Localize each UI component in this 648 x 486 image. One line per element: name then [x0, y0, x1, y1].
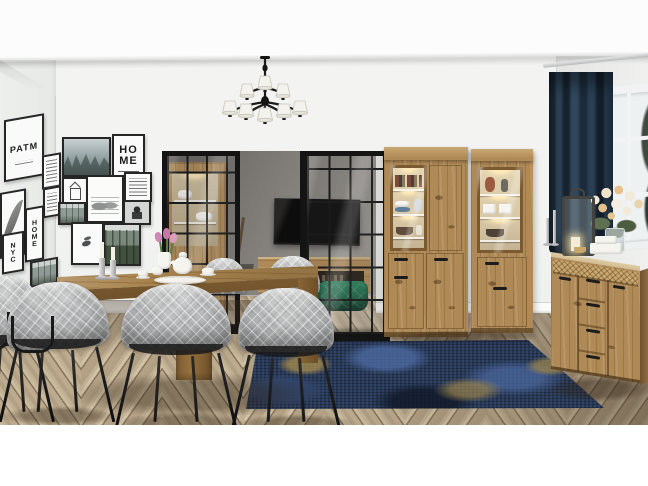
candlestick-silver — [553, 210, 556, 244]
chair-shell — [121, 284, 232, 350]
chair-leg — [266, 358, 273, 422]
lower-door-left — [388, 253, 424, 329]
dining-chair-center — [117, 284, 235, 434]
sugar-bowl — [152, 267, 163, 275]
chest-door-handle — [559, 276, 571, 281]
teapot — [173, 257, 192, 274]
chest-drawer-handle — [586, 303, 600, 308]
saucer — [200, 273, 216, 276]
print-text-poster — [124, 172, 152, 202]
chair-shell — [238, 288, 334, 352]
cabinet-top — [384, 147, 468, 160]
lantern-handle — [570, 188, 585, 199]
candlestick-silver — [546, 218, 549, 244]
door-handle — [434, 258, 448, 261]
candle — [100, 242, 104, 259]
glass-reflection — [390, 165, 427, 251]
cabinet-lower-door — [477, 257, 527, 327]
drawer-seam — [579, 323, 605, 329]
decor-gold-bowl — [574, 247, 586, 253]
cabinet-solid-door — [429, 165, 462, 251]
glass-reflection — [477, 167, 523, 253]
saucer — [136, 276, 150, 279]
chest-drawer-handle — [586, 329, 600, 334]
chair-leg — [191, 356, 199, 422]
teapot-lid — [179, 252, 187, 257]
print-pine-forest — [103, 223, 141, 266]
cabinet-glass-door — [390, 165, 427, 251]
dining-chair-right — [235, 288, 337, 434]
chest-of-drawers-front — [551, 257, 640, 383]
door-handle — [493, 287, 507, 290]
candle — [111, 247, 115, 261]
print-home-typography-text: HO ME — [114, 136, 143, 175]
chair-leg — [95, 347, 115, 422]
decor-white-box — [590, 243, 622, 254]
dining-chair-left — [2, 282, 112, 424]
interior-photo: PATMH O M EN Y C HO ME — [0, 0, 648, 486]
chair-leg — [154, 356, 162, 422]
door-handle — [394, 258, 408, 261]
display-cabinet-narrow — [471, 149, 533, 333]
decor-white-box-small — [595, 236, 617, 244]
chair-leg — [114, 353, 135, 433]
chair-frame-band — [129, 344, 223, 355]
chair-frame-band — [245, 346, 327, 356]
cabinet-glass-door — [477, 167, 523, 253]
print-house-sketch — [62, 177, 88, 205]
cabinet-lower-doors — [388, 253, 464, 329]
candlestick-silver — [99, 258, 105, 278]
door-handle — [394, 276, 408, 279]
chair-leg — [0, 347, 19, 422]
chest-drawer-handle — [586, 355, 600, 360]
display-cabinet-wide — [384, 147, 468, 337]
candlestick-base — [550, 243, 559, 246]
door-handle — [485, 262, 499, 265]
print-portrait — [123, 200, 151, 225]
chest-seam — [607, 280, 609, 376]
chest-of-drawers-side — [640, 268, 648, 385]
drawer-seam — [579, 349, 605, 355]
drawer-seam — [579, 297, 605, 303]
candlestick-base — [106, 276, 119, 280]
cabinet-top — [471, 149, 533, 161]
photo-white-margin — [0, 425, 648, 486]
lower-door-right — [426, 253, 464, 329]
chest-door-handle — [613, 285, 625, 290]
chair-leg — [298, 358, 305, 422]
chair-armrest — [11, 316, 54, 353]
print-misty-forest — [62, 137, 111, 177]
chair-leg — [36, 350, 43, 413]
chandelier — [202, 56, 328, 148]
print-home-typography: HO ME — [112, 134, 145, 177]
print-motorbike-sketch — [86, 175, 124, 223]
serving-tray — [154, 276, 206, 284]
chair-leg — [71, 350, 78, 413]
